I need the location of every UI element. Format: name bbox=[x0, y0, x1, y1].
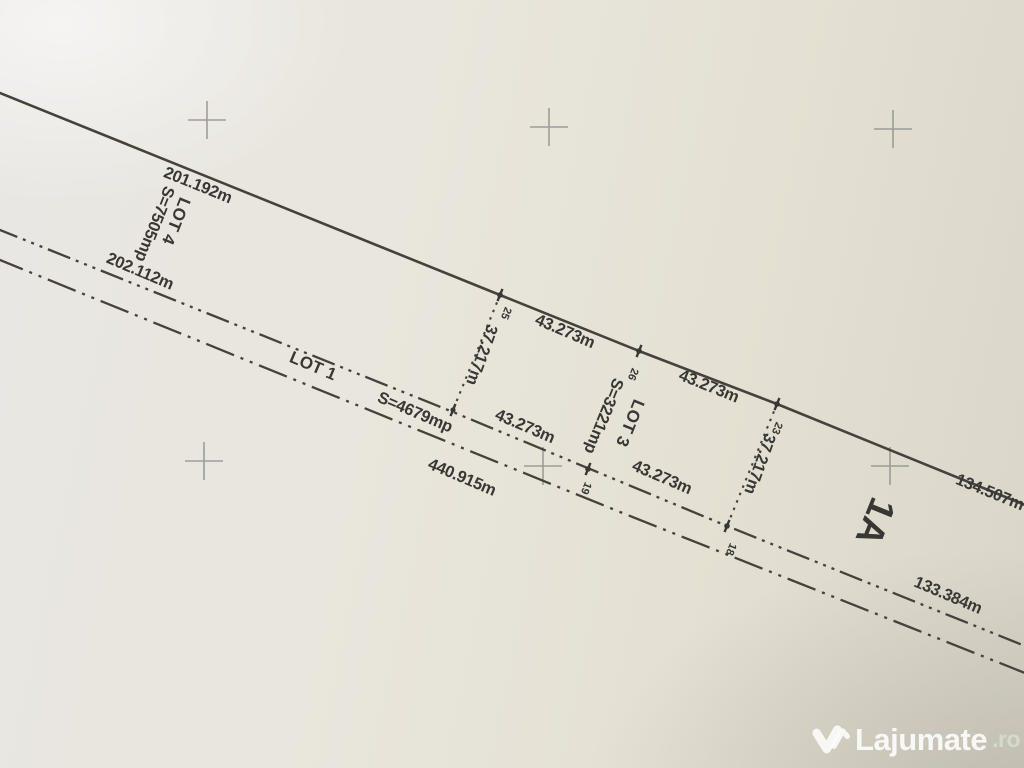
dim-lot1-lower-total: 440.915m bbox=[425, 455, 498, 500]
cross-icon bbox=[188, 101, 226, 139]
dim-top-right-segment: 134.507m bbox=[953, 471, 1024, 515]
point-marker-19 bbox=[585, 463, 591, 475]
lot1-area: S=4679mp bbox=[375, 389, 456, 437]
parcel-mark-1A: 1A bbox=[848, 492, 904, 551]
cross-icon bbox=[185, 442, 223, 480]
dim-top-seg-25-26: 43.273m bbox=[532, 311, 597, 352]
cross-icon bbox=[871, 447, 909, 485]
point-marker-25 bbox=[497, 289, 503, 301]
survey-drawing: 201.192m 43.273m 43.273m 134.507m LOT 4 … bbox=[0, 0, 1024, 768]
point-marker-18 bbox=[724, 520, 730, 532]
point-marker-corner bbox=[450, 404, 455, 416]
point-marker-26 bbox=[636, 345, 642, 357]
point-label-19: 19 bbox=[578, 480, 594, 496]
dim-lot3-right-side: 37.217m bbox=[740, 431, 778, 496]
dim-lot1-right-segment: 133.384m bbox=[911, 573, 984, 618]
top-boundary-line bbox=[0, 91, 1024, 507]
point-label-25: 25 bbox=[498, 305, 514, 321]
scanned-cadastral-plan: 201.192m 43.273m 43.273m 134.507m LOT 4 … bbox=[0, 0, 1024, 768]
dim-lot3-bottom-seg2: 43.273m bbox=[629, 457, 694, 498]
dim-top-seg-26-23: 43.273m bbox=[676, 366, 741, 406]
lot1-lower-boundary-line bbox=[0, 258, 1024, 675]
point-label-26: 26 bbox=[625, 366, 641, 382]
watermark-tld-text: .ro bbox=[992, 726, 1020, 753]
dim-lot3-left-side: 37.217m bbox=[462, 322, 500, 387]
point-marker-23 bbox=[774, 398, 780, 410]
lajumate-logo-icon bbox=[810, 716, 850, 762]
boundary-lines bbox=[0, 91, 1024, 675]
lot1-upper-boundary-line bbox=[0, 228, 1024, 648]
cross-icon bbox=[874, 110, 912, 148]
watermark-brand-text: Lajumate bbox=[855, 724, 987, 755]
lajumate-watermark: Lajumate.ro bbox=[810, 714, 1020, 764]
cross-icon bbox=[530, 108, 568, 146]
cross-icon bbox=[524, 447, 562, 485]
